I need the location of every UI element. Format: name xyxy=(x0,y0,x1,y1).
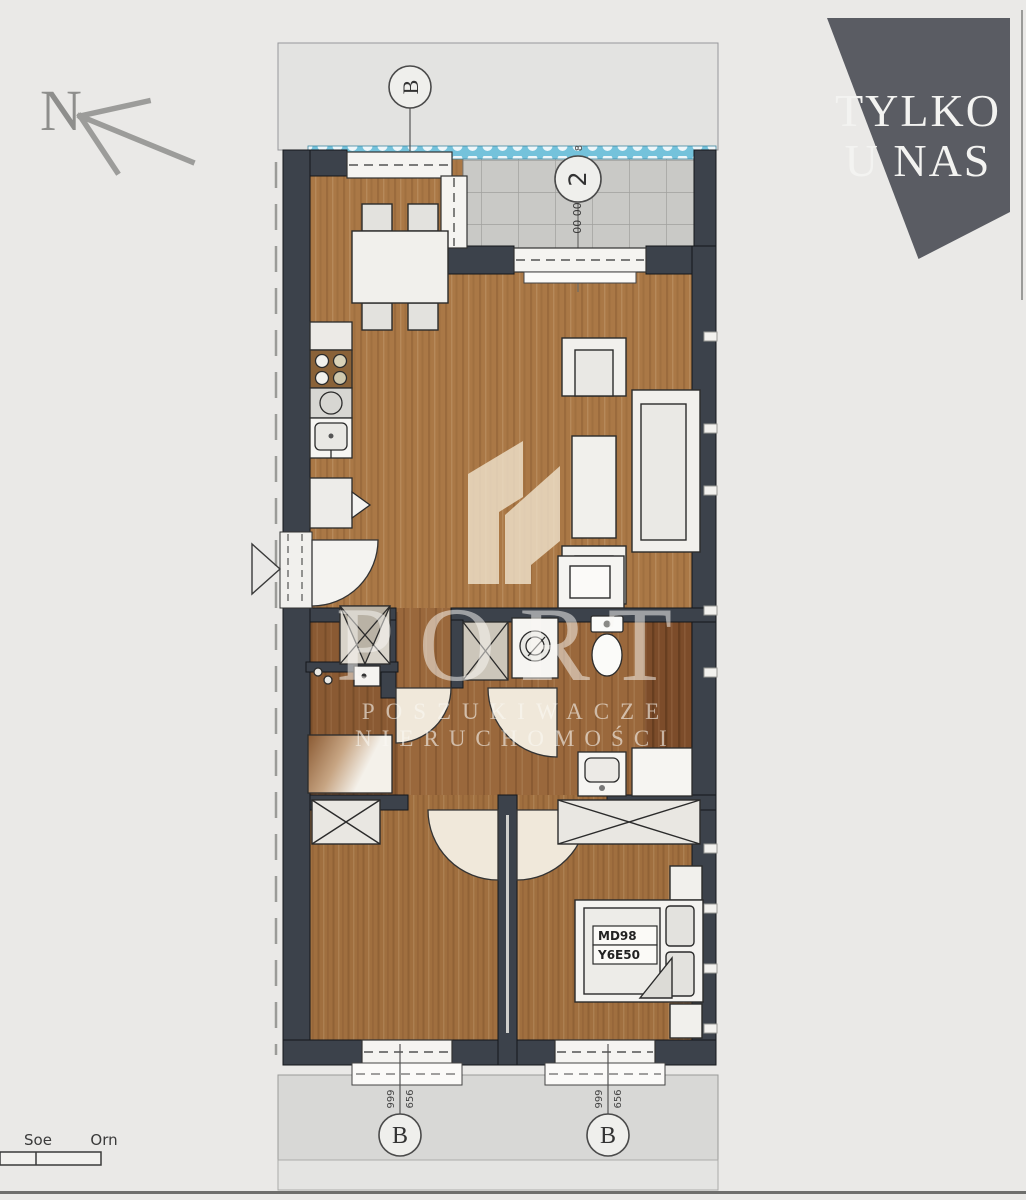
dining-chair-4 xyxy=(408,303,438,330)
upper-terrace-area xyxy=(278,43,718,150)
armchair-1-seat xyxy=(575,350,613,396)
hob-burner-1 xyxy=(316,355,329,368)
entrance-opening xyxy=(280,532,312,608)
badge-line1: TYLKO xyxy=(835,85,1001,136)
dining-chair-2 xyxy=(408,204,438,231)
coffee-table xyxy=(572,436,616,538)
wall-left-lower xyxy=(283,605,310,1065)
nightstand-bottom xyxy=(670,1004,702,1038)
section-label-top: B xyxy=(398,80,423,95)
bedroom-left-window xyxy=(362,1040,452,1065)
hook-2 xyxy=(324,676,332,684)
wall-right-balcony xyxy=(694,150,716,248)
hob-burner-3 xyxy=(316,372,329,385)
floorplan-page: N TYLKO U NAS 2 8 00 00 0,00 x 2 xyxy=(0,0,1026,1200)
wall-left-upper xyxy=(283,150,310,535)
sink-drain xyxy=(329,434,334,439)
balcony-tiny-dim-top: 8 xyxy=(574,145,585,151)
badge-line2: U NAS xyxy=(845,135,992,186)
balcony-tiny-dim-bottom: 00 00 xyxy=(571,202,584,234)
bed-label-line1: MD98 xyxy=(598,929,637,943)
dining-table xyxy=(352,231,448,303)
bathroom-counter xyxy=(632,748,692,796)
dining-chair-3 xyxy=(362,303,392,330)
lower-ground-strip-2 xyxy=(278,1160,718,1190)
section-label-bottom-right: B xyxy=(600,1123,616,1149)
dim-bl-a: 999 xyxy=(386,1089,397,1108)
hob-burner-2 xyxy=(334,355,347,368)
bathroom-sink-basin xyxy=(585,758,619,782)
wall-balcony-left-stub xyxy=(448,246,514,274)
dim-br-b: 656 xyxy=(613,1089,624,1108)
bed-pillow-1 xyxy=(666,906,694,946)
hob-burner-4 xyxy=(334,372,347,385)
right-edge-line xyxy=(1021,10,1023,300)
bathroom-sink-tap xyxy=(599,785,605,791)
bottom-border-line xyxy=(0,1191,1026,1194)
lower-ground-strip xyxy=(278,1075,718,1160)
hook-1 xyxy=(314,668,322,676)
dim-bl-b: 656 xyxy=(405,1089,416,1108)
watermark-brand: PORT xyxy=(336,586,697,703)
sofa-seat xyxy=(641,404,686,540)
dim-br-a: 999 xyxy=(594,1089,605,1108)
wall-divider-joint-line xyxy=(506,815,509,1033)
watermark-tagline2: NIERUCHOMOŚCI xyxy=(355,725,677,751)
north-label: N xyxy=(40,78,82,143)
floorplan-drawing: N TYLKO U NAS 2 8 00 00 0,00 x 2 xyxy=(0,0,1026,1200)
bed-label-line2: Y6E50 xyxy=(597,948,640,962)
scale-label-right: Orn xyxy=(90,1131,117,1149)
dining-chair-1 xyxy=(362,204,392,231)
nightstand-top xyxy=(670,866,702,900)
scale-bar-rect xyxy=(0,1152,101,1165)
kitchen-tall-cabinet xyxy=(310,478,352,528)
section-label-bottom-left: B xyxy=(392,1123,408,1149)
kitchen-cabinet xyxy=(310,322,352,350)
balcony-door-sill xyxy=(524,272,636,283)
balcony-circle-label: 2 xyxy=(564,171,592,186)
scale-label-left: Soe xyxy=(24,1131,52,1149)
watermark-tagline1: POSZUKIWACZE xyxy=(362,699,670,724)
